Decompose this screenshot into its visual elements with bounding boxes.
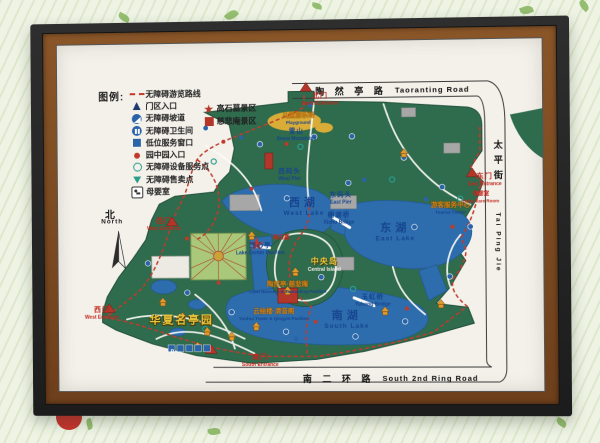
playground-label: 儿童游乐场Playground — [258, 111, 338, 125]
leaf-decoration — [312, 2, 323, 10]
legend-item: 门区入口 — [128, 99, 209, 112]
xiehu-bridge-label: 榭湖桥Xiehu Bridge — [304, 211, 374, 225]
equipment-service-icon — [128, 163, 146, 172]
yuhong-bridge-label: 玉虹桥Yuhong Bridge — [338, 294, 408, 308]
west-pier-label: 西码头West Pier — [255, 168, 325, 182]
legend-scenic-areas: 高石墓景区 慈悲庵景区 — [201, 102, 257, 129]
leaf-decoration — [577, 0, 590, 12]
south-2nd-ring-road-label: 南 二 环 路 South 2nd Ring Road — [282, 372, 499, 385]
gate-entrance-icon — [128, 102, 146, 110]
red-flag-marker — [265, 153, 273, 169]
south-gate-amenity-icons — [168, 345, 210, 352]
west-entrance-lower-label: 西门West Entrance — [71, 307, 134, 322]
legend-item: 园中园入口 — [128, 148, 209, 161]
leaf-decoration — [207, 427, 220, 437]
baby-room-icon — [128, 186, 146, 198]
south-entrance-label: 南门South Entrance — [228, 354, 292, 368]
legend-title: 图例: — [98, 88, 124, 103]
legend-item: 低位服务窗口 — [128, 136, 209, 149]
west-entrance-upper-label: 西门West Entrance — [133, 218, 196, 233]
wheelchair-ramp-icon — [128, 114, 146, 124]
photo-background: 图例: 无障碍游览路线 门区入口 无障碍坡道 无障碍卫生间 低位服务窗口 园中园… — [0, 0, 600, 443]
offsite-green-area — [510, 108, 543, 158]
leaf-decoration — [519, 4, 534, 16]
taipingjie-road-label-en: Tai Ping Jie — [494, 212, 502, 272]
snow-mountains-label: 雪山Snow Mountains — [261, 128, 331, 143]
legend-item: 无障碍游览路线 — [128, 87, 209, 100]
south-lake-label: 南湖South Lake — [307, 310, 387, 331]
gaoshi-tomb-label: 高石墓 — [261, 235, 301, 242]
north-entrance-label: 北门North Entrance — [288, 92, 352, 107]
compass-north-en: North — [101, 218, 123, 225]
sign-frame: 图例: 无障碍游览路线 门区入口 无障碍坡道 无障碍卫生间 低位服务窗口 园中园… — [42, 25, 560, 405]
accessible-toilet-icon — [128, 126, 146, 136]
central-island-label: 中央岛Central Island — [284, 257, 364, 273]
leaf-decoration — [555, 417, 568, 429]
building-zone — [152, 256, 189, 278]
radial-garden — [191, 233, 246, 280]
park-map-sign: 图例: 无障碍游览路线 门区入口 无障碍坡道 无障碍卫生间 低位服务窗口 园中园… — [30, 16, 572, 417]
garden-entry-icon — [128, 152, 146, 158]
yunhui-qingyin-label: 云绘楼·清音阁Yunhui Tower & Qingyin Pavilion — [234, 308, 314, 321]
legend: 无障碍游览路线 门区入口 无障碍坡道 无障碍卫生间 低位服务窗口 园中园入口 无… — [128, 87, 210, 198]
red-square-icon — [201, 113, 217, 131]
red-dashed-route-icon — [128, 93, 146, 95]
huaxia-pavilion-garden-label: 华夏名亭园 — [123, 314, 242, 328]
legend-item: 母婴室 — [128, 185, 209, 198]
compass-arrow-icon — [112, 231, 126, 268]
east-pier-label: 东码头East Pier — [306, 191, 376, 205]
legend-item: 慈悲庵景区 — [201, 115, 257, 129]
tourist-center-label: 游客服务中心Tourist Center — [415, 201, 486, 215]
legend-item: 无障碍坡道 — [128, 112, 209, 125]
legend-item: 无障碍卫生间 — [128, 124, 209, 137]
legend-item: 无障碍设备服务点 — [128, 161, 209, 174]
legend-item: 无障碍售卖点 — [128, 173, 209, 186]
service-window-icon — [128, 139, 146, 147]
map-board: 图例: 无障碍游览路线 门区入口 无障碍坡道 无障碍卫生间 低位服务窗口 园中园… — [56, 37, 546, 392]
leaf-decoration — [117, 12, 131, 23]
leaf-decoration — [85, 418, 94, 430]
lake-center-pavilion-label: 湖心亭Lake Center Pavilion — [216, 242, 306, 256]
taoranting-cibeian-label: 陶然亭·慈悲庵Cibei Nunnery & Taoranting Pavili… — [248, 281, 328, 295]
kiosk-icon — [128, 176, 146, 183]
parking-icon: P — [171, 349, 175, 355]
east-entrance-label: 东门East Entrance — [453, 173, 516, 188]
